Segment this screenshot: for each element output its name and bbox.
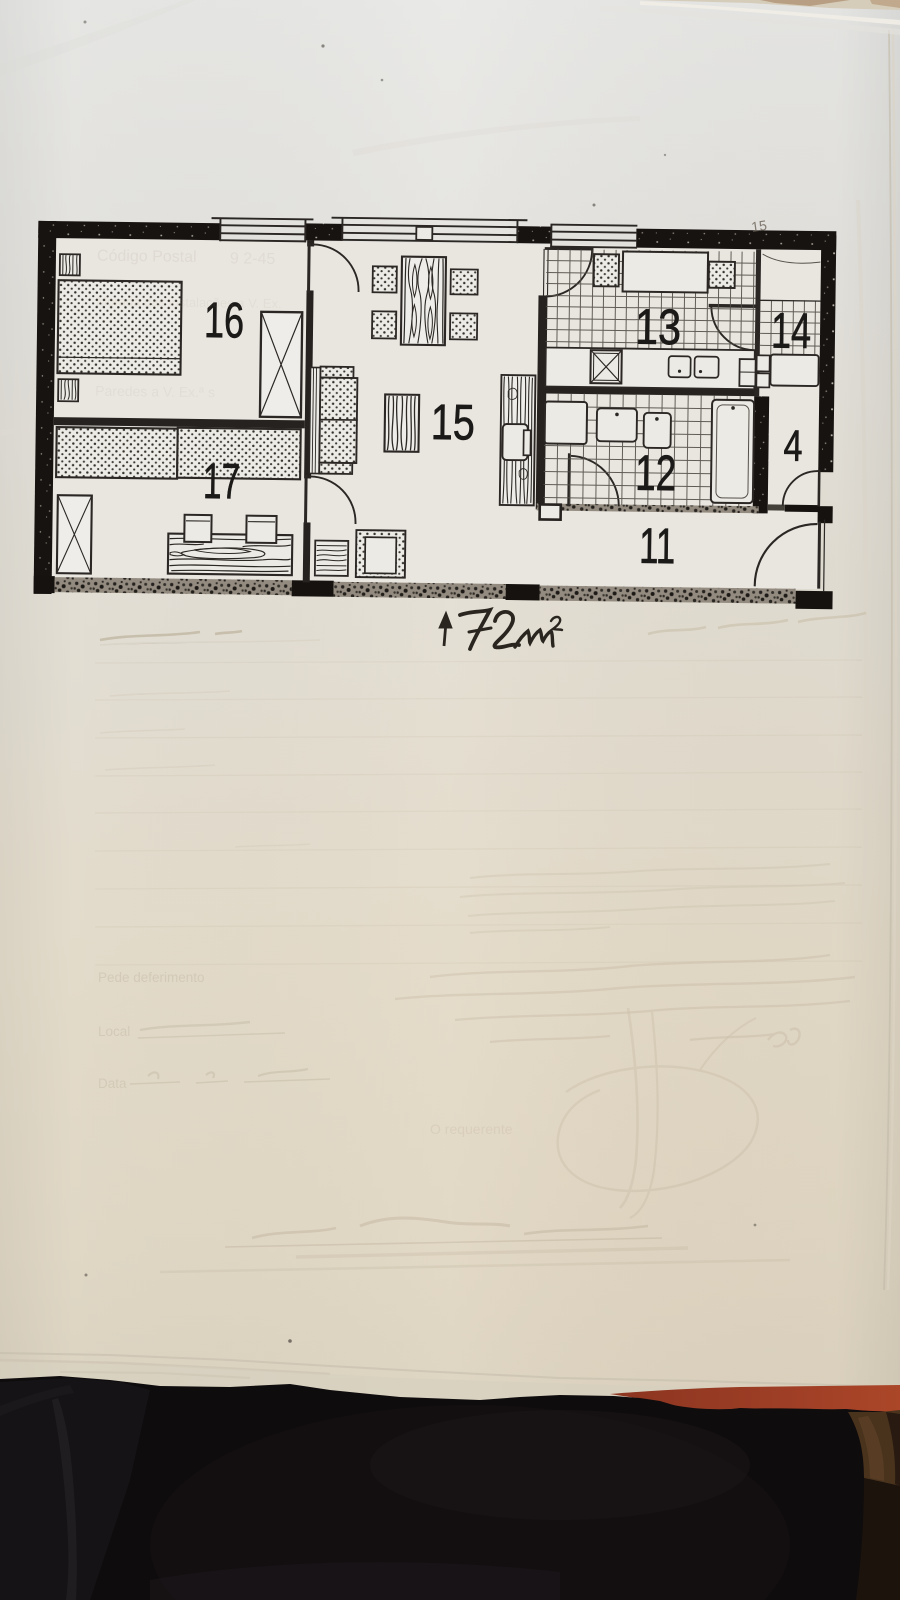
- svg-text:15: 15: [750, 217, 768, 235]
- svg-text:O requerente: O requerente: [430, 1121, 513, 1137]
- svg-text:Paredes a V. Ex.ª s: Paredes a V. Ex.ª s: [95, 383, 215, 401]
- svg-text:11: 11: [639, 518, 676, 574]
- svg-text:17: 17: [203, 453, 241, 509]
- svg-text:Data: Data: [98, 1076, 127, 1091]
- svg-text:Pede deferimento: Pede deferimento: [98, 970, 205, 985]
- svg-text:14: 14: [771, 302, 812, 359]
- svg-text:Código Postal: Código Postal: [97, 248, 197, 266]
- svg-text:Morada das instalações a V: Morada das instalações a V. Ex.: [96, 294, 281, 311]
- svg-text:Local: Local: [98, 1024, 130, 1039]
- svg-text:9 2-45: 9 2-45: [230, 250, 276, 268]
- svg-text:13: 13: [635, 299, 682, 356]
- svg-text:12: 12: [635, 445, 677, 502]
- svg-text:4: 4: [783, 422, 803, 471]
- svg-text:15: 15: [430, 394, 475, 451]
